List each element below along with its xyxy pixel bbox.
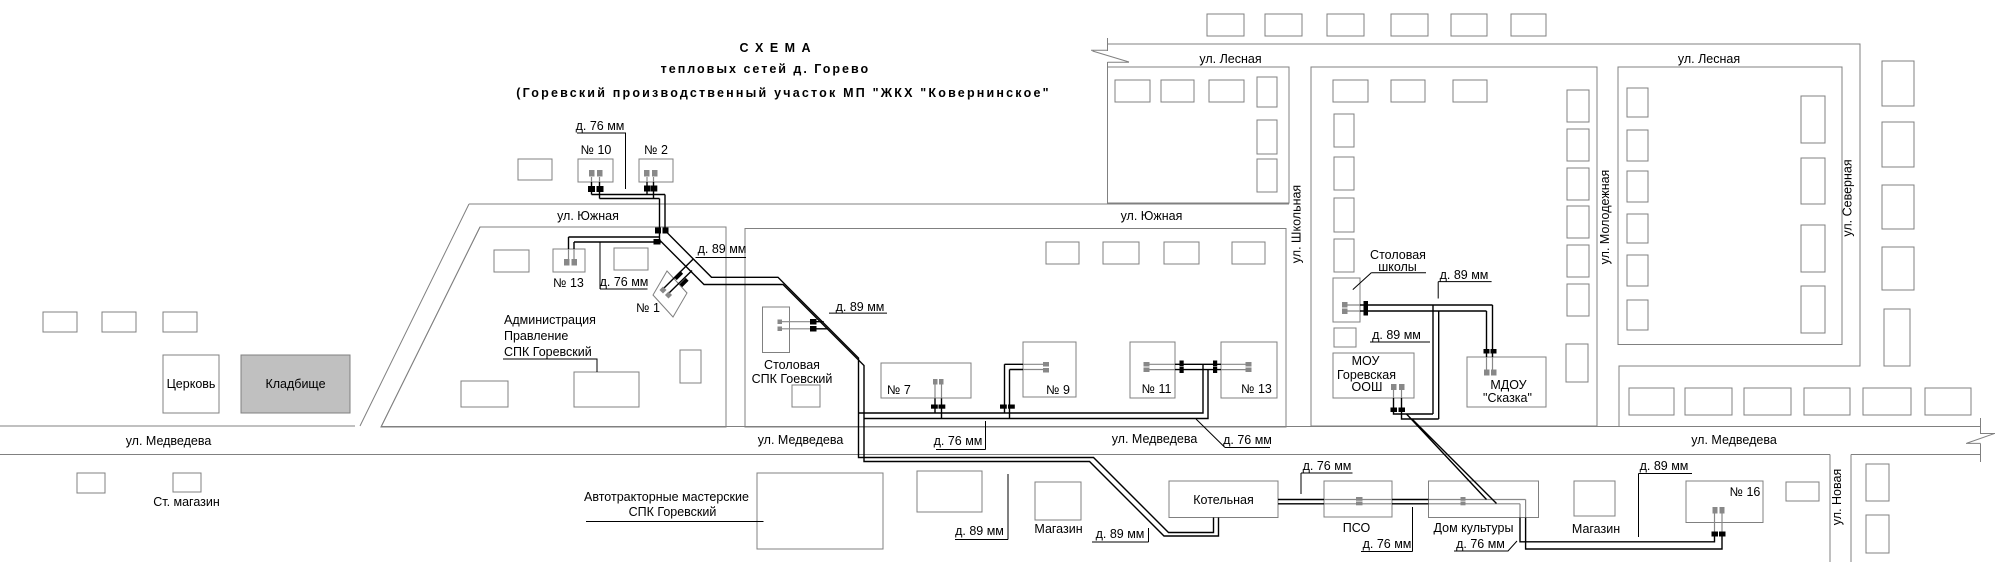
svg-text:ПСО: ПСО xyxy=(1343,521,1371,535)
svg-text:(Горевский производственный уч: (Горевский производственный участок МП "… xyxy=(516,86,1050,100)
svg-text:"Сказка": "Сказка" xyxy=(1483,391,1532,405)
svg-text:д. 89 мм: д. 89 мм xyxy=(836,300,885,314)
svg-text:ул. Северная: ул. Северная xyxy=(1841,159,1855,236)
svg-text:№ 13: № 13 xyxy=(1241,382,1272,396)
svg-text:СПК Горевский: СПК Горевский xyxy=(629,505,717,519)
svg-text:ул. Медведева: ул. Медведева xyxy=(1691,433,1777,447)
svg-text:школы: школы xyxy=(1378,260,1417,274)
svg-text:Кладбище: Кладбище xyxy=(265,377,325,391)
svg-text:д. 89 мм: д. 89 мм xyxy=(1096,527,1145,541)
svg-text:№ 16: № 16 xyxy=(1730,485,1761,499)
svg-text:д. 89 мм: д. 89 мм xyxy=(698,242,747,256)
svg-text:Администрация: Администрация xyxy=(504,313,596,327)
svg-text:Магазин: Магазин xyxy=(1572,522,1620,536)
svg-text:МДОУ: МДОУ xyxy=(1490,378,1526,392)
svg-text:Котельная: Котельная xyxy=(1193,493,1254,507)
svg-text:ул. Южная: ул. Южная xyxy=(557,209,619,223)
svg-text:ул. Лесная: ул. Лесная xyxy=(1199,52,1261,66)
svg-text:Правление: Правление xyxy=(504,329,568,343)
svg-text:д. 76 мм: д. 76 мм xyxy=(576,119,625,133)
svg-text:ул. Лесная: ул. Лесная xyxy=(1678,52,1740,66)
svg-text:ООШ: ООШ xyxy=(1352,380,1383,394)
svg-text:МОУ: МОУ xyxy=(1352,354,1380,368)
svg-text:ул. Медведева: ул. Медведева xyxy=(1112,432,1198,446)
svg-text:СПК Горевский: СПК Горевский xyxy=(504,345,592,359)
svg-text:д. 76 мм: д. 76 мм xyxy=(1223,433,1272,447)
svg-text:д. 76 мм: д. 76 мм xyxy=(1303,459,1352,473)
svg-text:№ 13: № 13 xyxy=(553,276,584,290)
svg-text:д. 89 мм: д. 89 мм xyxy=(1440,268,1489,282)
svg-text:ул. Школьная: ул. Школьная xyxy=(1290,185,1304,263)
svg-text:д. 89 мм: д. 89 мм xyxy=(955,524,1004,538)
svg-text:Церковь: Церковь xyxy=(167,377,216,391)
svg-text:д. 76 мм: д. 76 мм xyxy=(1363,537,1412,551)
svg-text:ул. Новая: ул. Новая xyxy=(1830,469,1844,525)
svg-text:Магазин: Магазин xyxy=(1034,522,1082,536)
svg-text:№ 2: № 2 xyxy=(644,143,668,157)
svg-text:№ 10: № 10 xyxy=(581,143,612,157)
svg-text:Автотракторные мастерские: Автотракторные мастерские xyxy=(584,490,749,504)
svg-text:д. 76 мм: д. 76 мм xyxy=(934,434,983,448)
svg-text:С Х Е М А: С Х Е М А xyxy=(740,41,813,55)
svg-text:Столовая: Столовая xyxy=(764,358,820,372)
svg-text:д. 89 мм: д. 89 мм xyxy=(1640,459,1689,473)
svg-text:д. 76 мм: д. 76 мм xyxy=(600,275,649,289)
svg-text:№ 1: № 1 xyxy=(636,301,660,315)
svg-text:Ст. магазин: Ст. магазин xyxy=(153,495,220,509)
svg-text:тепловых сетей д. Горево: тепловых сетей д. Горево xyxy=(661,62,871,76)
svg-text:ул. Молодежная: ул. Молодежная xyxy=(1598,170,1612,265)
svg-text:д. 89 мм: д. 89 мм xyxy=(1372,328,1421,342)
svg-text:№ 11: № 11 xyxy=(1142,382,1172,396)
svg-text:№ 9: № 9 xyxy=(1046,383,1070,397)
svg-text:ул. Медведева: ул. Медведева xyxy=(758,433,844,447)
svg-text:ул. Медведева: ул. Медведева xyxy=(126,434,212,448)
svg-text:ул. Южная: ул. Южная xyxy=(1121,209,1183,223)
svg-text:№ 7: № 7 xyxy=(887,383,911,397)
svg-text:д. 76 мм: д. 76 мм xyxy=(1456,537,1505,551)
svg-text:Дом культуры: Дом культуры xyxy=(1434,521,1514,535)
svg-text:СПК Гоевский: СПК Гоевский xyxy=(752,372,833,386)
